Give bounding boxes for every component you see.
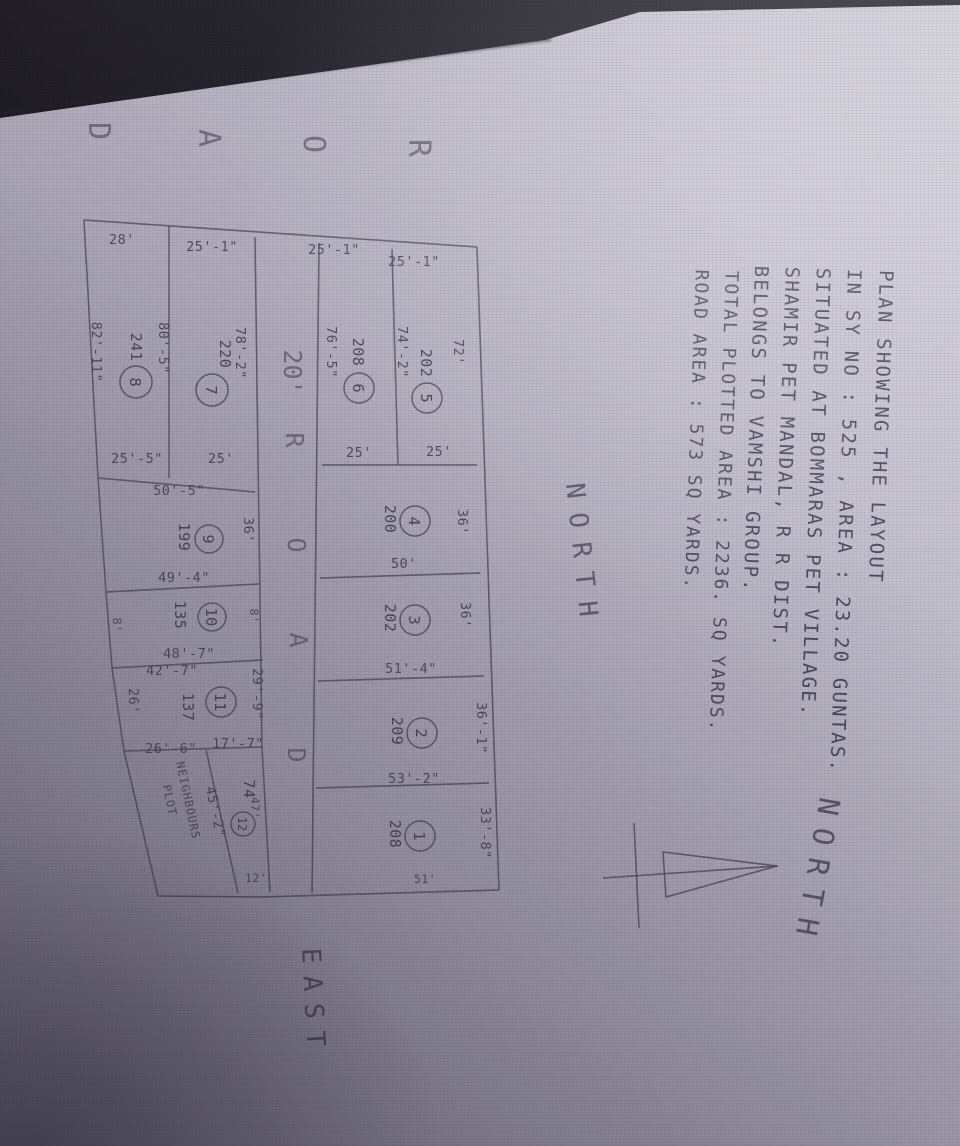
plot-9-area: 199	[175, 523, 193, 552]
road-area: ROAD AREA : 573 SQ YARDS.	[680, 269, 712, 590]
plot-8-west-dim: 28'	[109, 232, 135, 248]
road-letter-d: D	[282, 747, 311, 762]
plot-5-north-dim: 72'	[450, 339, 466, 365]
east-direction-label: EAST	[295, 947, 331, 1059]
plot-8-north-dim: 80'-5"	[155, 322, 171, 374]
road-north-line	[312, 243, 319, 893]
west-road-letter-o: O	[296, 135, 331, 153]
plot-12-north-dim: 47'	[248, 797, 262, 819]
plot-9: 36' 9 199 49'-4"	[158, 517, 256, 586]
plot4-3-divider-line	[320, 573, 480, 578]
plot-10: 8' 10 135 48'-7" 8'	[110, 601, 261, 662]
plot-9-north-dim: 36'	[240, 517, 256, 543]
plot-2-area: 209	[388, 717, 406, 746]
plot-11-east-lower-dim: 26'-6"	[145, 741, 197, 757]
plot-5-area: 202	[417, 349, 435, 378]
plot-6-area: 208	[349, 338, 367, 367]
title-line-1: PLAN SHOWING THE LAYOUT	[864, 270, 897, 584]
plot-1-east-dim: 51'	[414, 872, 436, 886]
plot-3: 36' 3 202 51'-4"	[381, 602, 473, 677]
plot-2-east-dim: 53'-2"	[388, 771, 440, 787]
south-boundary-line	[84, 220, 112, 668]
plot-2-north-dim: 36'-1"	[473, 702, 489, 754]
plot-3-number: 3	[405, 615, 423, 624]
plot-8-east-dim: 25'-5"	[111, 451, 163, 467]
plot-6-west-dim: 25'-1"	[308, 242, 360, 258]
plot-5-south-dim: 74'-2"	[394, 326, 410, 378]
plot-4-north-dim: 36'	[454, 509, 470, 535]
plot-2-number: 2	[412, 728, 430, 737]
plot-7-west-dim: 25'-1"	[186, 239, 238, 255]
plot-8-area: 241	[127, 333, 145, 362]
plot-4-area: 200	[381, 505, 399, 534]
plan-document: PLAN SHOWING THE LAYOUT IN SY NO : 525 ,…	[0, 0, 960, 1146]
neighbours-plot: NEIGHBOURS PLOT	[156, 760, 204, 844]
road-width-label: 20'	[278, 349, 307, 394]
title-line-5: BELONGS TO VAMSHI GROUP.	[739, 265, 772, 593]
west-road-letter-a: A	[191, 129, 226, 147]
plot-9-east-dim: 49'-4"	[158, 570, 210, 586]
plot-4-number: 4	[405, 516, 423, 525]
west-boundary-line	[84, 220, 477, 247]
north-boundary-line	[477, 247, 499, 890]
plot-5-number: 5	[417, 393, 435, 402]
plot-7-north-dim: 78'-2"	[232, 327, 248, 379]
plot-3-area: 202	[381, 604, 399, 633]
plot-10-east-dim: 48'-7"	[163, 646, 215, 662]
plot-12-east-dim: 12'	[245, 871, 267, 885]
plot-12-number: 12	[235, 817, 249, 831]
plot-6-south-dim: 76'-5"	[323, 326, 339, 378]
road-letter-r: R	[280, 432, 309, 448]
plot-1: 33'-8" 1 208 51'	[386, 807, 493, 886]
plot-6-number: 6	[349, 383, 367, 392]
plot-10-number: 10	[202, 608, 220, 627]
compass-north-label: NORTH	[787, 795, 847, 951]
north-direction-label: NORTH	[559, 481, 604, 632]
plot-10-north-dim: 8'	[247, 609, 261, 624]
plot-7-9-divider-dim: 50'-5"	[153, 483, 205, 499]
plot-1-number: 1	[410, 831, 428, 840]
plot-12-diagonal-dim: 45'-2"	[202, 785, 228, 839]
neighbours-plot-label-2: PLOT	[160, 783, 180, 817]
plot-7-number: 7	[202, 385, 220, 394]
plot-4: 36' 4 200 50'	[381, 505, 470, 572]
title-line-3: SITUATED AT BOMMARAS PET VILLAGE.	[796, 267, 834, 718]
plot-10-area: 135	[171, 601, 189, 630]
internal-road-label: 20' R O A D	[278, 349, 313, 762]
plot-11-number: 11	[211, 693, 229, 712]
plot-7-east-dim: 25'	[208, 451, 234, 467]
road-letter-o: O	[282, 537, 311, 552]
plot-1-north-dim: 33'-8"	[477, 807, 493, 859]
west-road-letter-r: R	[401, 139, 436, 158]
plot-11-north-dim: 29'-9"	[249, 668, 265, 720]
title-line-4: SHAMIR PET MANDAL, R R DIST.	[768, 266, 803, 648]
plot-2: 36'-1" 2 209 53'-2"	[388, 702, 489, 787]
plot-5-east-dim: 25'	[426, 444, 452, 460]
plot-3-north-dim: 36'	[457, 602, 473, 628]
east-boundary-line	[158, 890, 499, 897]
plot11-south-line	[112, 668, 124, 751]
plot-12: 47' 74 12 12' 45'-2"	[202, 779, 267, 885]
plot-11-east-upper-dim: 17'-7"	[212, 736, 264, 752]
plot-8-south-dim: 82'-11"	[88, 322, 104, 382]
compass-arrow-head	[663, 852, 777, 897]
plot-7-area: 220	[216, 340, 234, 369]
west-road-letter-d: D	[81, 122, 116, 140]
plot-3-east-dim: 51'-4"	[385, 661, 437, 677]
compass-shaft	[603, 866, 778, 878]
plot-11-area: 137	[179, 693, 197, 722]
road-letter-a: A	[284, 632, 313, 647]
west-road-label: R O A D	[81, 122, 436, 158]
plot-11-west-dim: 42'-7"	[146, 663, 198, 679]
plot-8-number: 8	[126, 377, 144, 386]
plot-4-east-dim: 50'	[391, 556, 417, 572]
plot-11-south-dim: 26'	[125, 688, 141, 714]
compass: NORTH	[603, 795, 847, 951]
neighbours-south-line	[124, 751, 158, 896]
road-lines	[255, 237, 319, 893]
plot-5: 72' 202 5 74'-2" 25'-1" 25'	[388, 254, 466, 460]
photo-of-plan-document: PLAN SHOWING THE LAYOUT IN SY NO : 525 ,…	[0, 0, 960, 1146]
title-block: PLAN SHOWING THE LAYOUT IN SY NO : 525 ,…	[674, 263, 897, 775]
plot-10-south-dim: 8'	[110, 618, 124, 633]
plot-12-area: 74	[240, 779, 258, 798]
plot-5-west-dim: 25'-1"	[388, 254, 440, 270]
plot-11: 29'-9" 42'-7" 11 137 17'-7" 26'-6" 26'	[125, 663, 265, 757]
plot-8: 80'-5" 241 8 28' 82'-11" 25'-5"	[88, 232, 171, 467]
plot-6-east-dim: 25'	[346, 445, 372, 461]
plot-1-area: 208	[386, 820, 404, 849]
layout-boundary-lines	[84, 220, 499, 897]
plan-drawing: PLAN SHOWING THE LAYOUT IN SY NO : 525 ,…	[0, 0, 960, 1146]
plot-9-number: 9	[199, 534, 217, 543]
